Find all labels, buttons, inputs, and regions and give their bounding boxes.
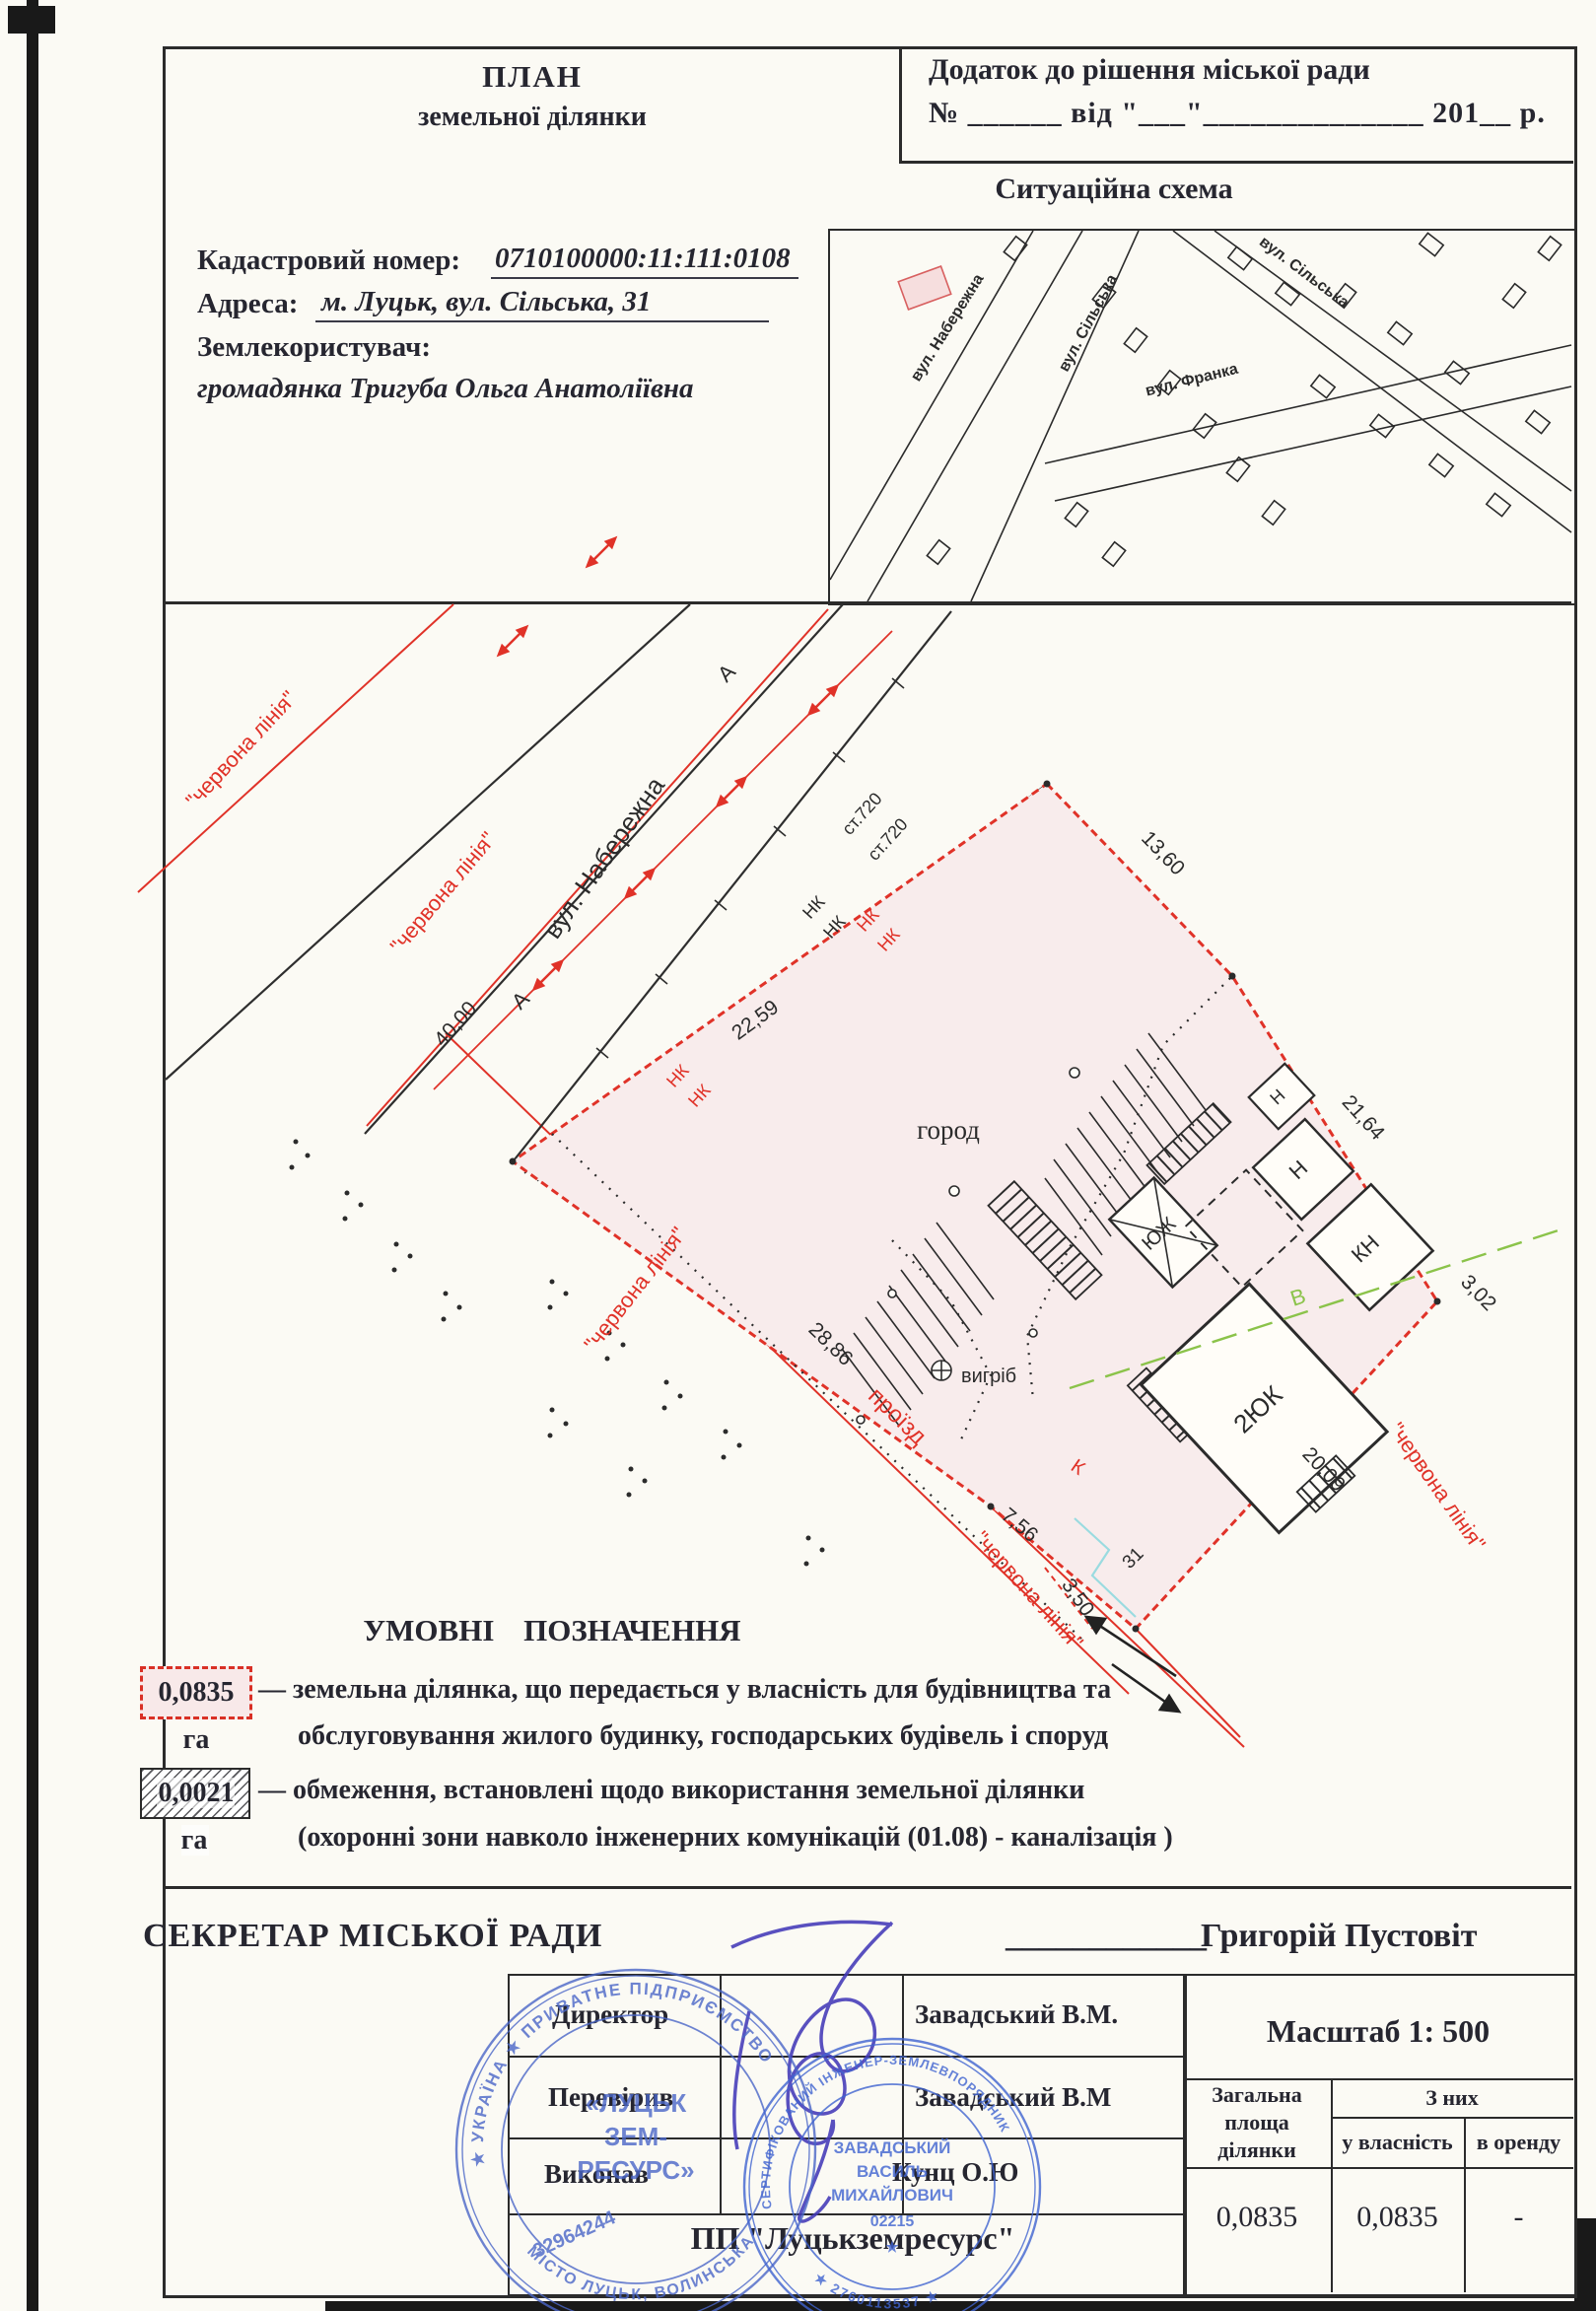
cadastral-label: Кадастровий номер: — [197, 245, 460, 277]
section-divider — [163, 601, 1571, 604]
header-divider-vertical — [899, 46, 902, 163]
credentials-row-line2 — [508, 2137, 1183, 2139]
area-table-top-line — [1183, 2078, 1573, 2080]
secretary-label: СЕКРЕТАР МІСЬКОЇ РАДИ — [143, 1918, 602, 1955]
page-subtitle: земельної ділянки — [166, 102, 899, 133]
credentials-row-line3 — [508, 2213, 1183, 2215]
area-owned-value: 0,0835 — [1331, 2201, 1464, 2234]
company-name: ПП "Луцькземресурс" — [537, 2220, 1168, 2257]
legend-item1-line2: обслуговування жилого будинку, господарс… — [298, 1720, 1108, 1752]
address-value: м. Луцьк, вул. Сільська, 31 — [315, 286, 769, 322]
area-col1-line2: площа — [1183, 2110, 1331, 2136]
credentials-row-line1 — [508, 2056, 1183, 2058]
area-col1-line3: ділянки — [1183, 2137, 1331, 2163]
secretary-underline: ____________ — [1006, 1918, 1207, 1955]
situation-map-box — [828, 229, 1576, 605]
area-total-value: 0,0835 — [1183, 2201, 1331, 2234]
legend-item2-line1: — обмеження, встановлені щодо використан… — [258, 1775, 1084, 1806]
credit-name-director: Завадський В.М. — [915, 1999, 1118, 2030]
credit-name-checked: Завадський В.М — [915, 2082, 1111, 2113]
area-col2-sub: у власність — [1331, 2130, 1464, 2155]
credit-role-director: Директор — [552, 1999, 668, 2030]
document-page: ПЛАН земельної ділянки Додаток до рішенн… — [0, 0, 1596, 2311]
credentials-col-line1 — [720, 1974, 722, 2213]
scale-value: Масштаб 1: 500 — [1183, 2013, 1573, 2050]
area-rented-value: - — [1464, 2201, 1573, 2234]
scan-artifact-bottom — [325, 2301, 1596, 2311]
legend-title: УМОВНІ ПОЗНАЧЕННЯ — [315, 1613, 789, 1648]
cadastral-value: 0710100000:11:111:0108 — [491, 243, 798, 279]
header-annex-bottom-border — [899, 161, 1573, 164]
area-table-header-bottom — [1183, 2167, 1573, 2169]
page-title: ПЛАН — [166, 59, 899, 95]
address-label: Адреса: — [197, 288, 298, 320]
annex-line2: № ______ від "___"______________ 201__ р… — [929, 97, 1546, 130]
area-col1-line1: Загальна — [1183, 2082, 1331, 2108]
legend-item1-line1: — земельна ділянка, що передається у вла… — [258, 1674, 1111, 1706]
footer-divider — [163, 1886, 1571, 1889]
scan-artifact-right — [1574, 2218, 1596, 2311]
annex-line1: Додаток до рішення міської ради — [929, 53, 1370, 87]
landuser-value: громадянка Тригуба Ольга Анатоліївна — [197, 373, 694, 405]
credit-name-executed: Кунц О.Ю — [892, 2157, 1018, 2188]
scan-artifact-corner — [8, 6, 55, 34]
area-znyh-header: З них — [1331, 2085, 1573, 2111]
secretary-name: Григорій Пустовіт — [1201, 1918, 1477, 1955]
scan-artifact-left — [27, 0, 38, 2311]
area-col3-sub: в оренду — [1464, 2130, 1573, 2155]
credit-role-checked: Перевірив — [548, 2082, 673, 2113]
legend-item2-line2: (охоронні зони навколо інженерних комуні… — [298, 1822, 1173, 1854]
credit-role-executed: Виконав — [544, 2159, 649, 2190]
area-table-znyh-line — [1331, 2117, 1573, 2119]
situation-title: Ситуаційна схема — [927, 173, 1301, 206]
legend-swatch-parcel: 0,0835 га — [140, 1666, 252, 1719]
landuser-label: Землекористувач: — [197, 331, 431, 364]
legend-swatch-restriction: 0,0021 га — [140, 1768, 250, 1819]
